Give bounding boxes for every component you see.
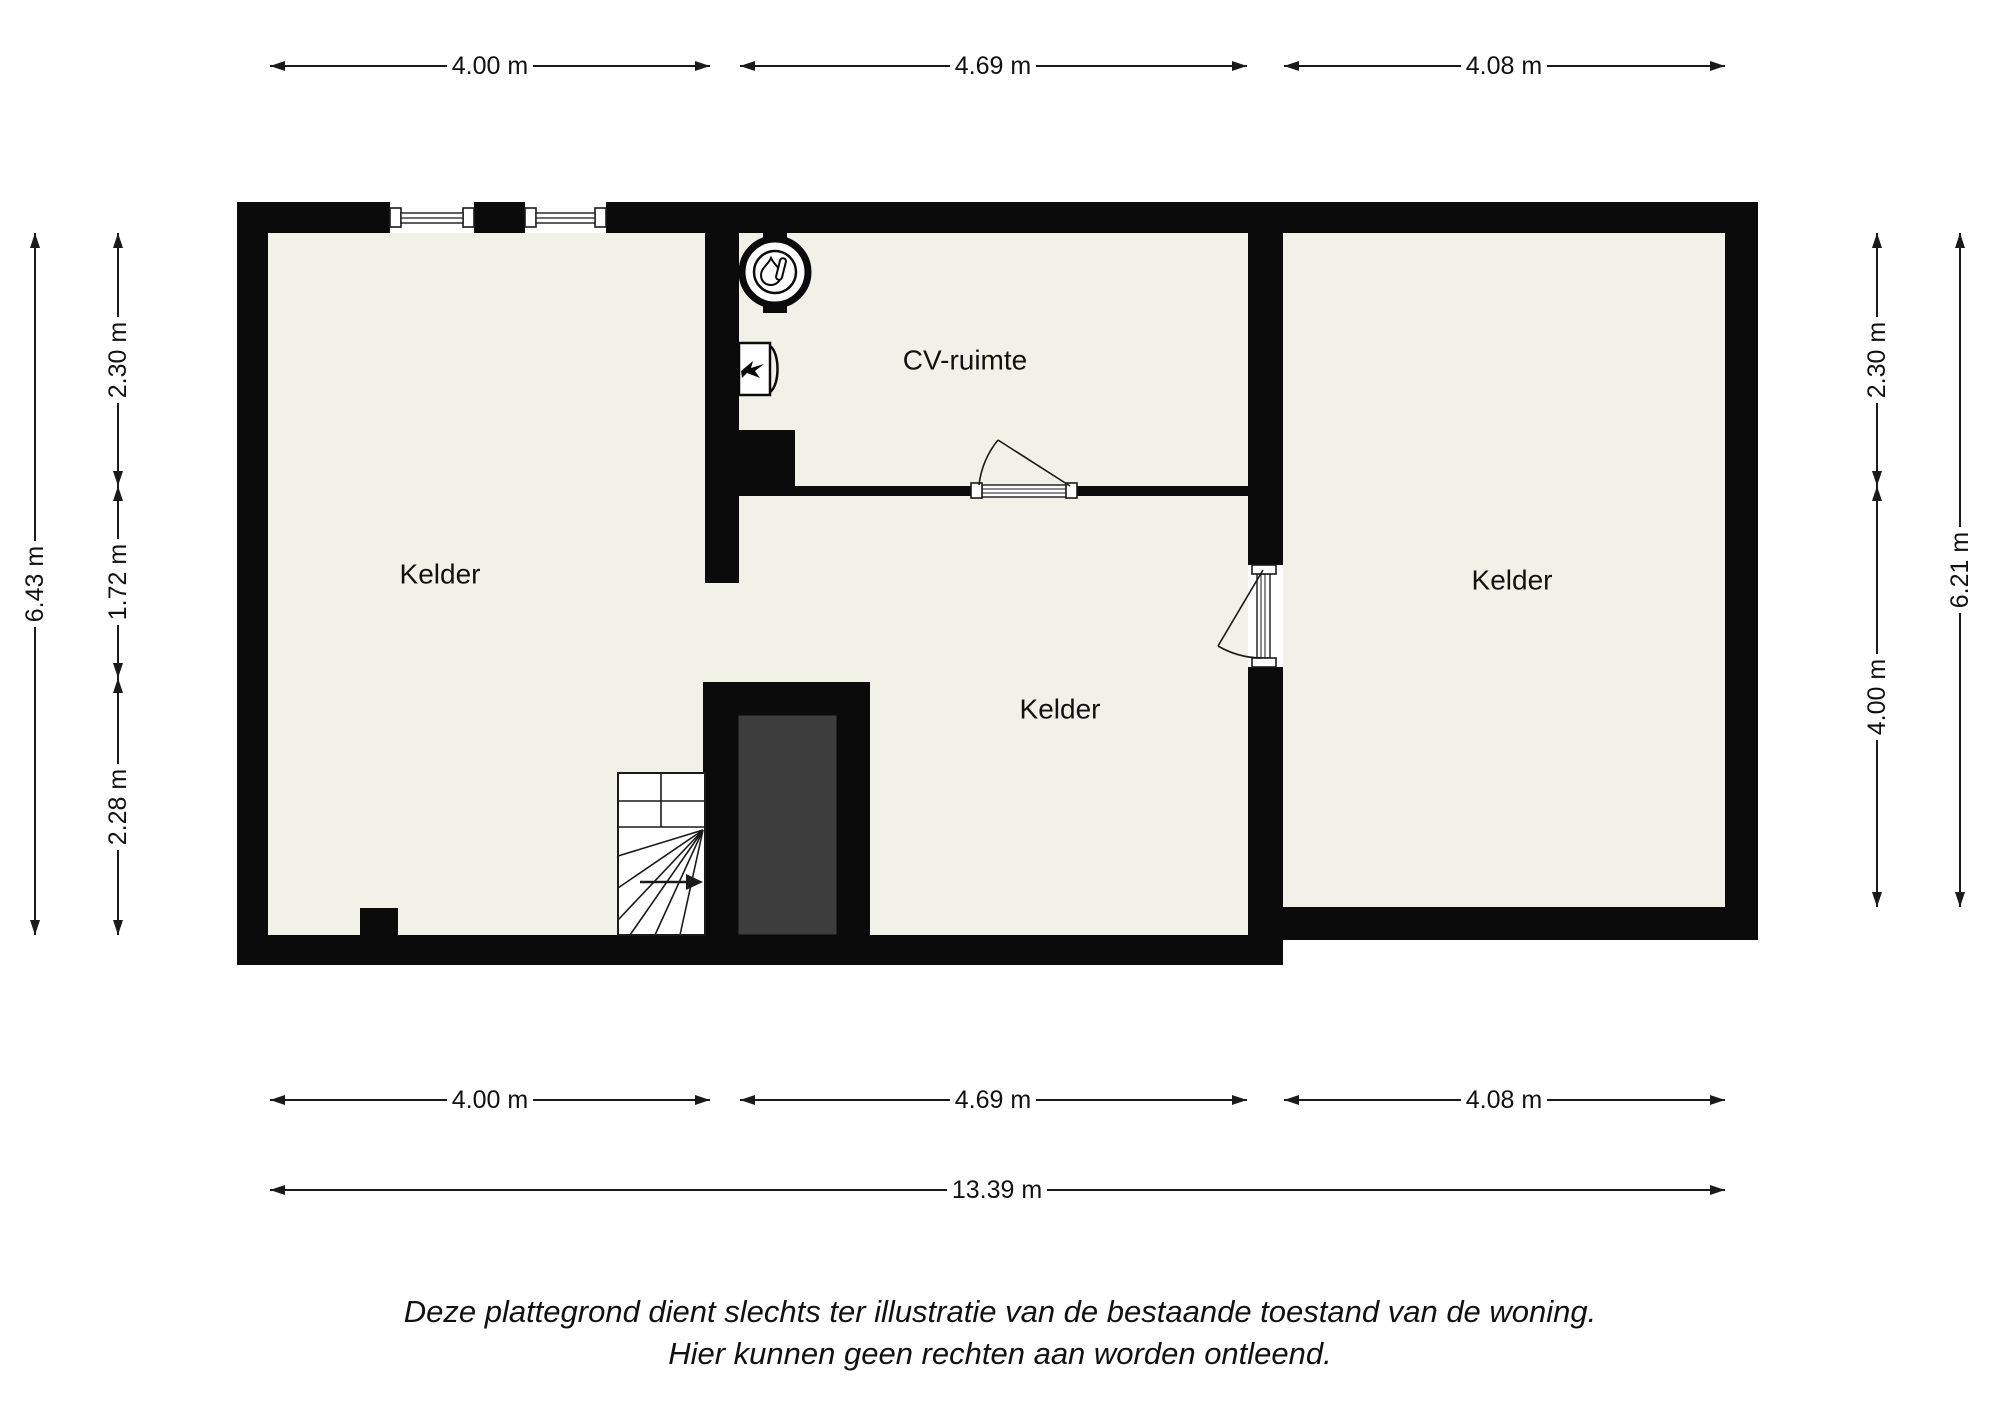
stairs <box>618 773 705 935</box>
svg-text:4.69 m: 4.69 m <box>955 1086 1031 1114</box>
room-label-kelder-middle: Kelder <box>1020 694 1101 725</box>
dimension-bottom-middle: 4.69 m <box>740 1086 1247 1114</box>
window-icon <box>525 202 606 233</box>
dimension-top-left: 4.00 m <box>270 52 710 80</box>
svg-text:4.00 m: 4.00 m <box>452 52 528 80</box>
svg-text:4.00 m: 4.00 m <box>452 1086 528 1114</box>
svg-text:4.08 m: 4.08 m <box>1466 52 1542 80</box>
disclaimer-line-2: Hier kunnen geen rechten aan worden ontl… <box>668 1336 1332 1371</box>
svg-text:6.43 m: 6.43 m <box>21 546 49 622</box>
floorplan-page: Kelder CV-ruimte Kelder Kelder 4.00 m 4.… <box>0 0 2000 1414</box>
svg-text:1.72 m: 1.72 m <box>104 544 132 620</box>
svg-text:13.39 m: 13.39 m <box>952 1176 1042 1204</box>
svg-text:4.08 m: 4.08 m <box>1466 1086 1542 1114</box>
dimension-right-seg-1: 2.30 m <box>1863 233 1891 486</box>
svg-text:4.00 m: 4.00 m <box>1863 659 1891 735</box>
dimension-top-right: 4.08 m <box>1284 52 1725 80</box>
svg-text:2.30 m: 2.30 m <box>104 322 132 398</box>
room-label-kelder-left: Kelder <box>400 559 481 590</box>
dimension-total-width: 13.39 m <box>270 1176 1725 1204</box>
dimension-top-middle: 4.69 m <box>740 52 1247 80</box>
dimension-bottom-left: 4.00 m <box>270 1086 710 1114</box>
shaft <box>703 682 870 935</box>
svg-text:6.21 m: 6.21 m <box>1946 532 1974 608</box>
dimension-right-seg-2: 4.00 m <box>1863 486 1891 907</box>
disclaimer-line-1: Deze plattegrond dient slechts ter illus… <box>404 1294 1597 1329</box>
dimension-left-seg-3: 2.28 m <box>104 678 132 935</box>
dimension-bottom-right: 4.08 m <box>1284 1086 1725 1114</box>
floorplan-drawing: Kelder CV-ruimte Kelder Kelder 4.00 m 4.… <box>0 0 2000 1414</box>
svg-text:4.69 m: 4.69 m <box>955 52 1031 80</box>
dimension-left-outer: 6.43 m <box>21 233 49 935</box>
dimension-left-seg-2: 1.72 m <box>104 486 132 678</box>
svg-text:2.28 m: 2.28 m <box>104 769 132 845</box>
room-label-cv-ruimte: CV-ruimte <box>903 345 1027 376</box>
dimension-left-seg-1: 2.30 m <box>104 233 132 486</box>
window-icon <box>390 202 474 233</box>
room-label-kelder-right: Kelder <box>1472 565 1553 596</box>
dimension-right-outer: 6.21 m <box>1946 233 1974 907</box>
svg-text:2.30 m: 2.30 m <box>1863 322 1891 398</box>
